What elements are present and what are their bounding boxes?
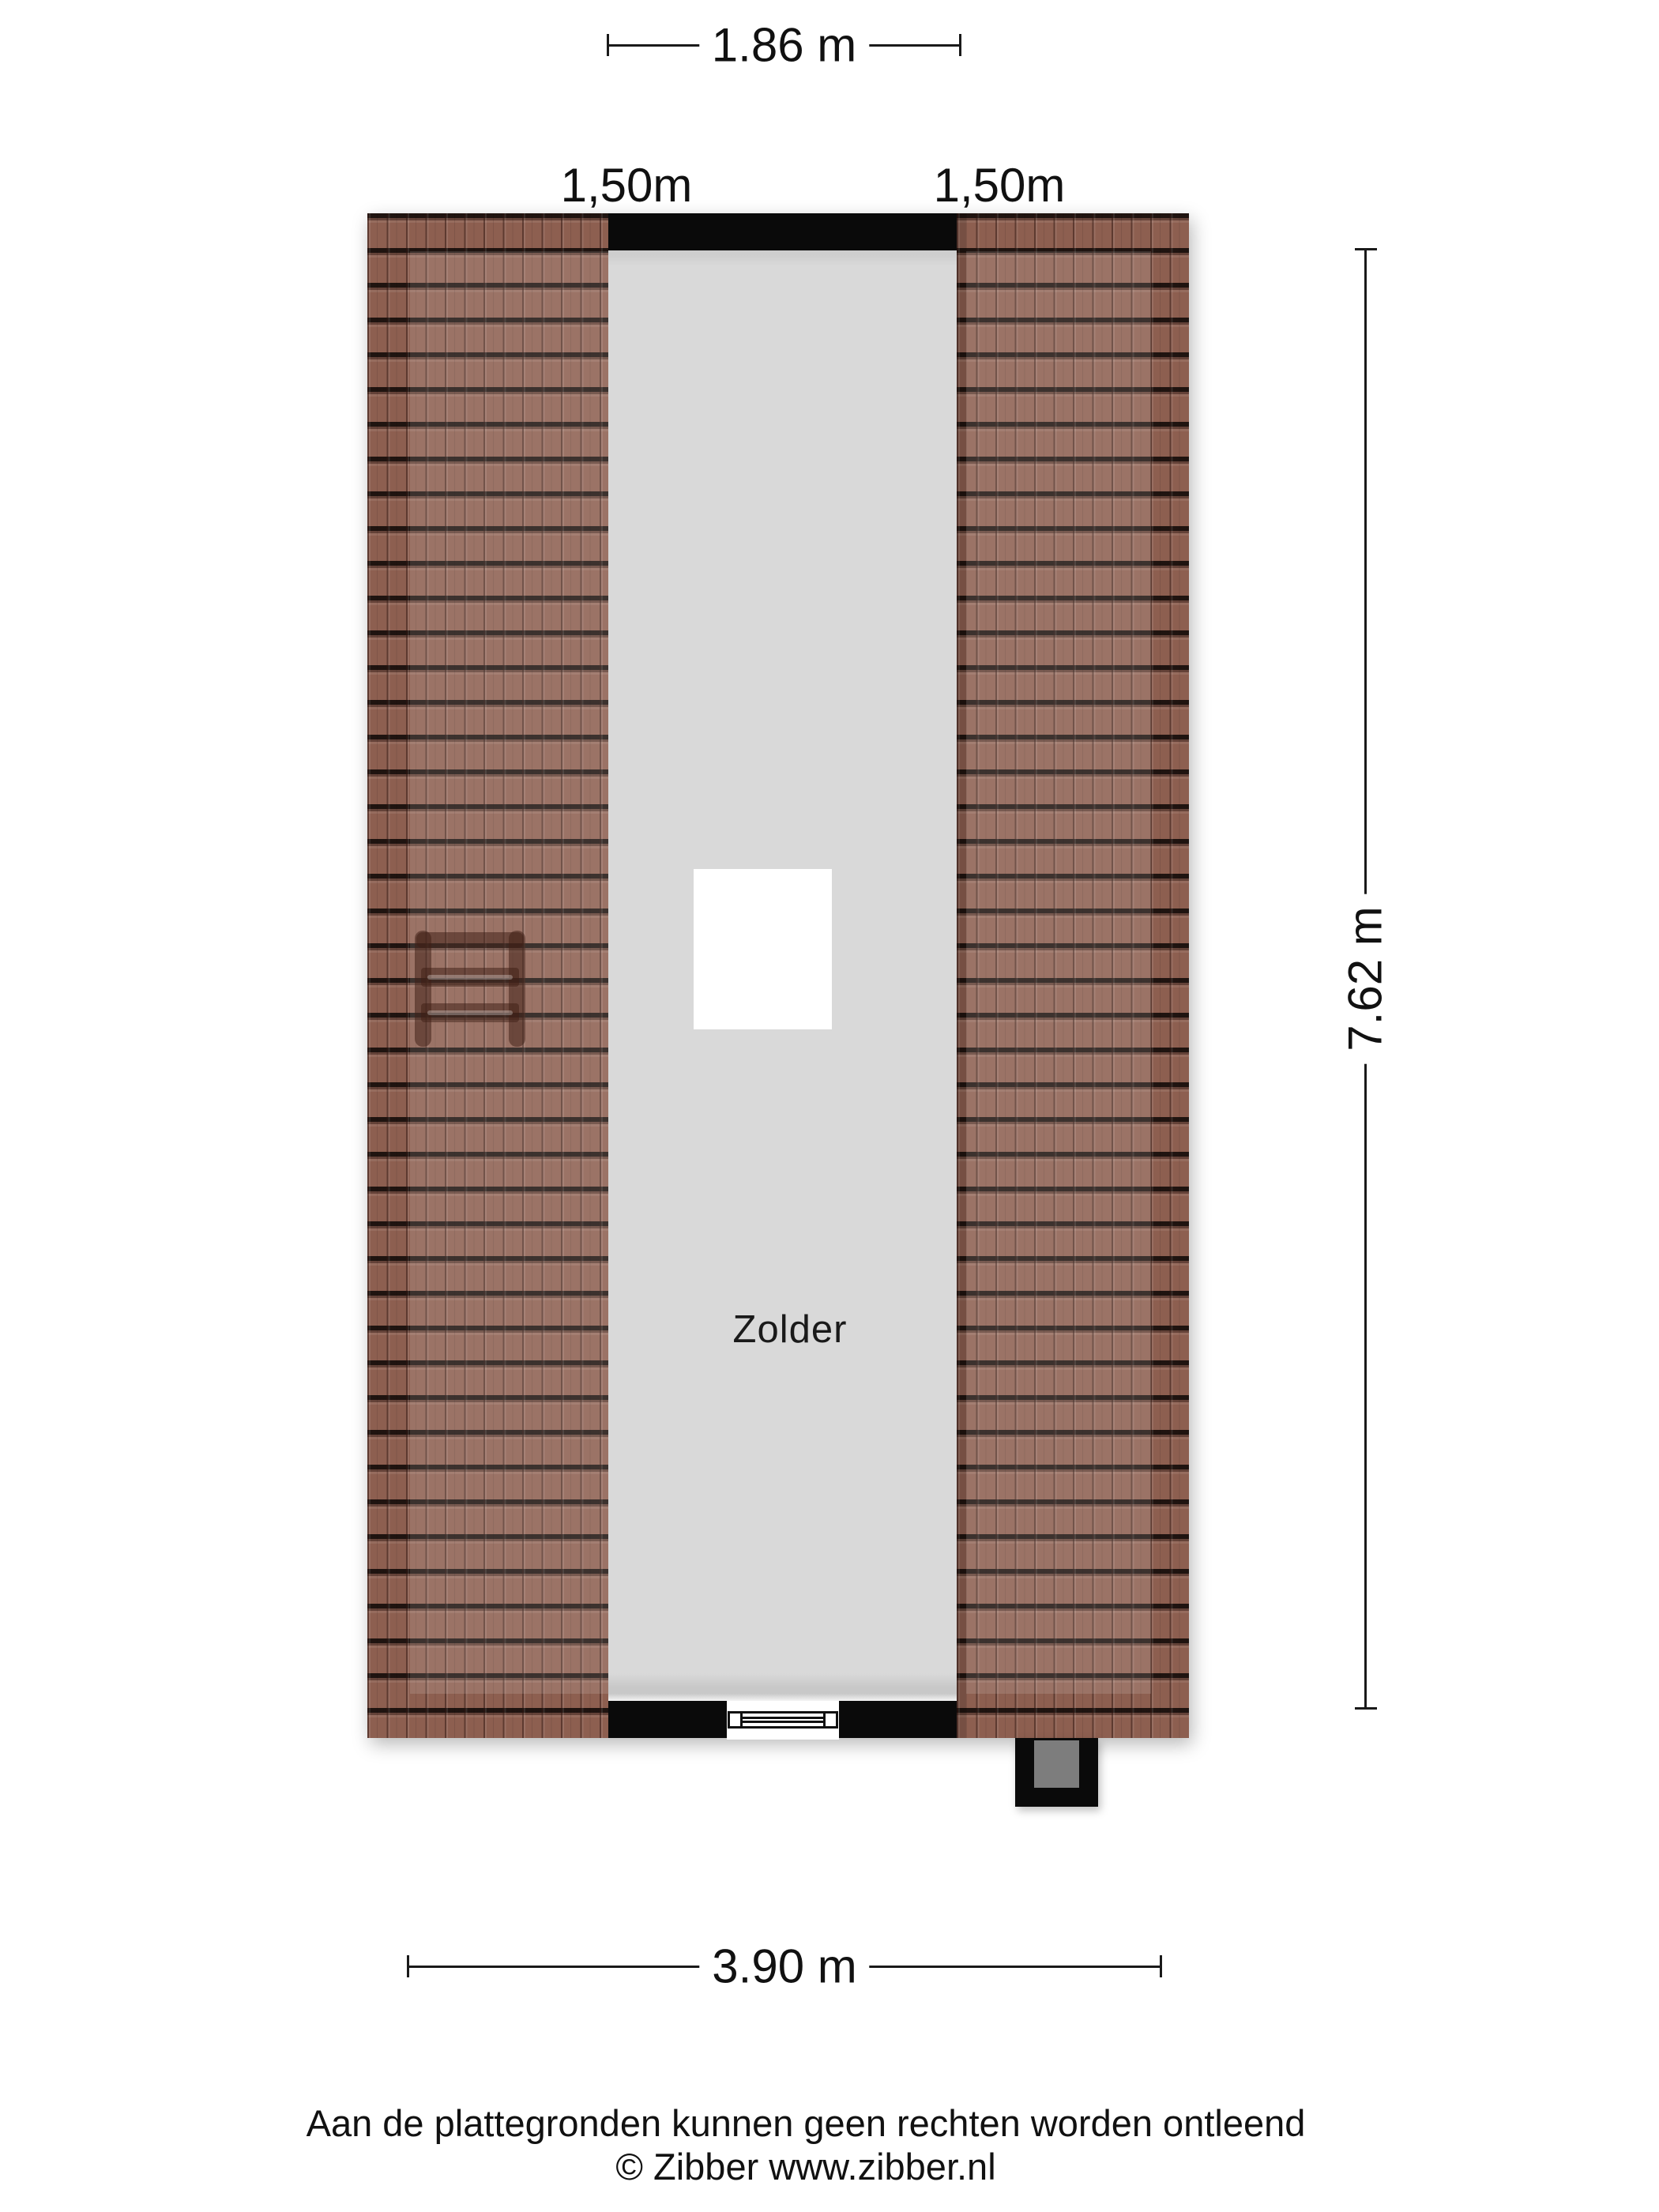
dimension-tick xyxy=(959,34,961,56)
floorplan-drawing: Zolder xyxy=(367,213,1189,1738)
dimension-label-right: 7.62 m xyxy=(1338,893,1393,1063)
skylight-void xyxy=(694,869,832,1029)
chair-rail xyxy=(415,931,431,1047)
top-wall xyxy=(608,213,957,250)
chair-bar xyxy=(416,932,524,948)
dimension-tick xyxy=(1355,248,1377,250)
roof-highlight-overlay xyxy=(966,251,1151,1694)
dimension-tick xyxy=(1160,1955,1162,1977)
window-frame xyxy=(728,1711,838,1729)
chimney-flue xyxy=(1034,1740,1079,1788)
footer-credit: © Zibber www.zibber.nl xyxy=(0,2145,1612,2188)
knee-wall-label-left: 1,50m xyxy=(561,158,693,213)
room-label: Zolder xyxy=(733,1307,848,1352)
floor-edge-shadow xyxy=(608,1694,957,1701)
footer-disclaimer: Aan de plattegronden kunnen geen rechten… xyxy=(0,2101,1612,2145)
roof-left xyxy=(367,213,608,1738)
floorplan-page: 1.86 m 1,50m 1,50m xyxy=(0,0,1659,2212)
window-post xyxy=(740,1714,743,1726)
window-glazing-line xyxy=(743,1717,823,1719)
roof-right xyxy=(957,213,1189,1738)
chair-rail xyxy=(509,931,525,1047)
bottom-wall-right xyxy=(839,1701,957,1738)
roof-shadow xyxy=(957,213,966,1738)
chimney xyxy=(1015,1738,1098,1807)
window-glazing-line xyxy=(743,1721,823,1723)
knee-wall-label-right: 1,50m xyxy=(934,158,1066,213)
dimension-top: 1.86 m xyxy=(607,33,961,57)
dimension-label-bottom: 3.90 m xyxy=(699,1939,869,1994)
chair-slat xyxy=(427,975,513,980)
footer: Aan de plattegronden kunnen geen rechten… xyxy=(0,2101,1612,2188)
dimension-tick xyxy=(1355,1707,1377,1710)
window-post xyxy=(823,1714,826,1726)
window-symbol xyxy=(727,1701,839,1740)
dimension-bottom: 3.90 m xyxy=(407,1954,1162,1978)
dimension-label-top: 1.86 m xyxy=(699,18,869,73)
chair-slat xyxy=(427,1010,513,1015)
bottom-wall-left xyxy=(608,1701,727,1738)
chair-icon xyxy=(415,923,525,1047)
dimension-tick xyxy=(407,1955,409,1977)
dimension-right: 7.62 m xyxy=(1353,248,1377,1710)
dimension-tick xyxy=(607,34,609,56)
